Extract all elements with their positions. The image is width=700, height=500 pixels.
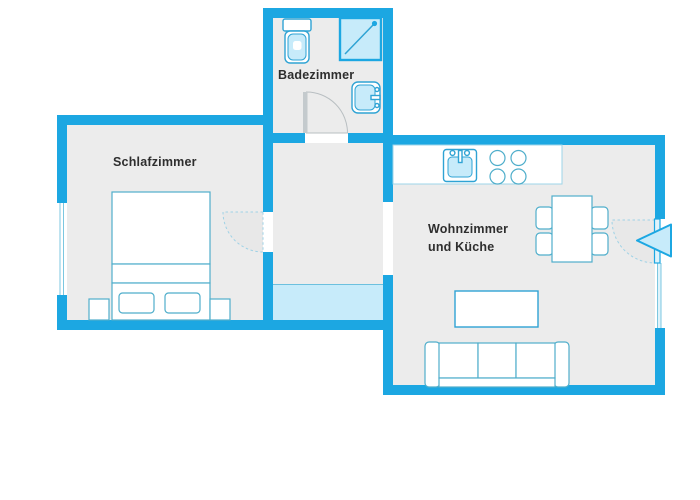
bathroom-sink-knob [375, 104, 379, 108]
dining-table [552, 196, 592, 262]
shower-icon [340, 18, 381, 60]
wall-living-top [383, 135, 665, 145]
wall-living-right-lower [655, 328, 665, 395]
sofa [425, 342, 569, 387]
bed-blanket-band [112, 264, 210, 283]
living-room-label: Wohnzimmer und Küche [428, 220, 508, 256]
living-window-glass [658, 263, 662, 328]
wall-bathroom-top [263, 8, 393, 18]
bathroom-sink-icon [352, 82, 380, 113]
bathroom-label: Badezimmer [278, 66, 354, 84]
sofa-seat [478, 343, 516, 378]
wall-living-right-upper [655, 135, 665, 219]
sofa-seat [439, 343, 478, 378]
wall-center-vertical-lower [263, 252, 273, 330]
living-room-window [655, 263, 665, 328]
coffee-table [455, 291, 538, 327]
bedroom-label: Schlafzimmer [113, 153, 197, 171]
bedroom-window-opening [57, 203, 67, 295]
kitchen-sink-knob [465, 151, 470, 156]
toilet-tank [283, 19, 311, 31]
bathroom-door-leaf [303, 92, 308, 133]
sofa-armrest-right [554, 342, 569, 387]
stove-burner [511, 169, 526, 184]
kitchen-sink-knob [450, 151, 455, 156]
dining-chair [591, 233, 608, 255]
shower-head [372, 21, 377, 26]
wall-corridor-right-lower [383, 275, 393, 395]
wall-bedroom-top [57, 115, 273, 125]
wall-bottom-bedroom-hallway [57, 320, 393, 330]
dining-chair [591, 207, 608, 229]
bed-mattress [112, 192, 210, 264]
kitchen-sink-icon [444, 150, 477, 182]
living-room-label-line2: und Küche [428, 238, 508, 256]
sofa-back [439, 378, 555, 387]
double-bed [112, 192, 210, 320]
wall-bathroom-right-upper [383, 8, 393, 202]
dining-chair [536, 233, 553, 255]
bed-pillow [165, 293, 200, 313]
hallway-highlight-area [273, 285, 383, 320]
toilet-seat [293, 41, 302, 50]
bedroom-window [57, 203, 67, 295]
stove-burner [490, 169, 505, 184]
bathroom-sink-tap [371, 96, 380, 100]
sofa-armrest-left [425, 342, 440, 387]
stove-burner [490, 151, 505, 166]
kitchen-sink-faucet [459, 151, 463, 163]
floor-plan: Badezimmer Schlafzimmer Wohnzimmer und K… [0, 0, 700, 500]
wall-center-vertical-upper [263, 8, 273, 212]
bathroom-sink-knob [375, 88, 379, 92]
nightstand-right [210, 299, 230, 320]
wall-bathroom-bottom-left [263, 133, 305, 143]
stove-burner [511, 151, 526, 166]
kitchen-counter [393, 145, 562, 184]
wall-bedroom-left-upper [57, 115, 67, 203]
sofa-seat [516, 343, 555, 378]
toilet-icon [283, 19, 311, 63]
dining-chair [536, 207, 553, 229]
kitchen-counter-top [393, 145, 562, 184]
living-room-label-line1: Wohnzimmer [428, 220, 508, 238]
nightstand-left [89, 299, 109, 320]
bed-pillow [119, 293, 154, 313]
